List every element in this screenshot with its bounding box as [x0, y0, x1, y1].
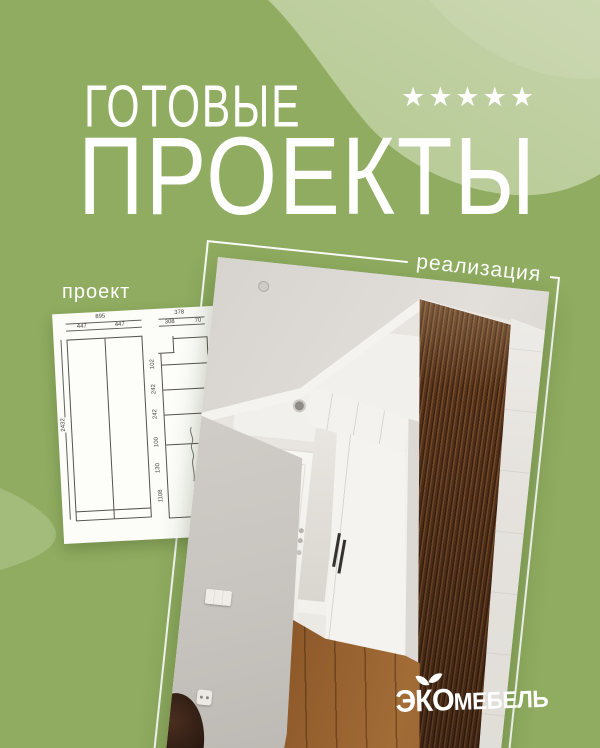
side-view-shelf-line: [162, 362, 208, 365]
dim-front-left: 447: [76, 323, 88, 330]
blueprint-front-view: [66, 336, 151, 522]
front-view-door-split: [104, 339, 114, 519]
hallway-photo: [157, 257, 549, 748]
dim-side-top: 308: [164, 319, 176, 326]
logo-text-mebel: МЕБЕЛЬ: [453, 686, 548, 716]
dim-front-total: 895: [94, 314, 106, 321]
title-line2: ПРОЕКТЫ: [78, 122, 537, 232]
logo: ЭКОМЕБЕЛЬ: [395, 679, 549, 720]
logo-text-eco: ЭКО: [395, 682, 455, 719]
blob-bottom-left: [0, 488, 56, 570]
dim-front-right: 447: [114, 322, 126, 329]
dim-side-h2: 242: [152, 408, 159, 420]
dim-side-h4: 130: [155, 462, 162, 474]
dim-side-h5: 1108: [158, 488, 165, 503]
dim-side-depth: 378: [173, 309, 185, 316]
side-view-notch: [157, 336, 174, 354]
star-rating: ★★★★★: [401, 82, 537, 113]
door-lock: [298, 528, 303, 533]
project-label: проект: [62, 281, 130, 304]
dim-side-h1: 242: [151, 383, 158, 395]
side-view-shelf-line: [163, 387, 209, 390]
dim-side-h0: 102: [150, 358, 157, 370]
power-outlet: [196, 689, 212, 705]
dim-front-height: 2432: [60, 417, 67, 433]
dim-side-edge: 70: [193, 317, 202, 323]
light-switch: [205, 588, 232, 606]
dim-side-h3: 100: [154, 436, 161, 448]
poster-background: ГОТОВЫЕ ПРОЕКТЫ ★★★★★ реализация проект …: [0, 0, 600, 748]
